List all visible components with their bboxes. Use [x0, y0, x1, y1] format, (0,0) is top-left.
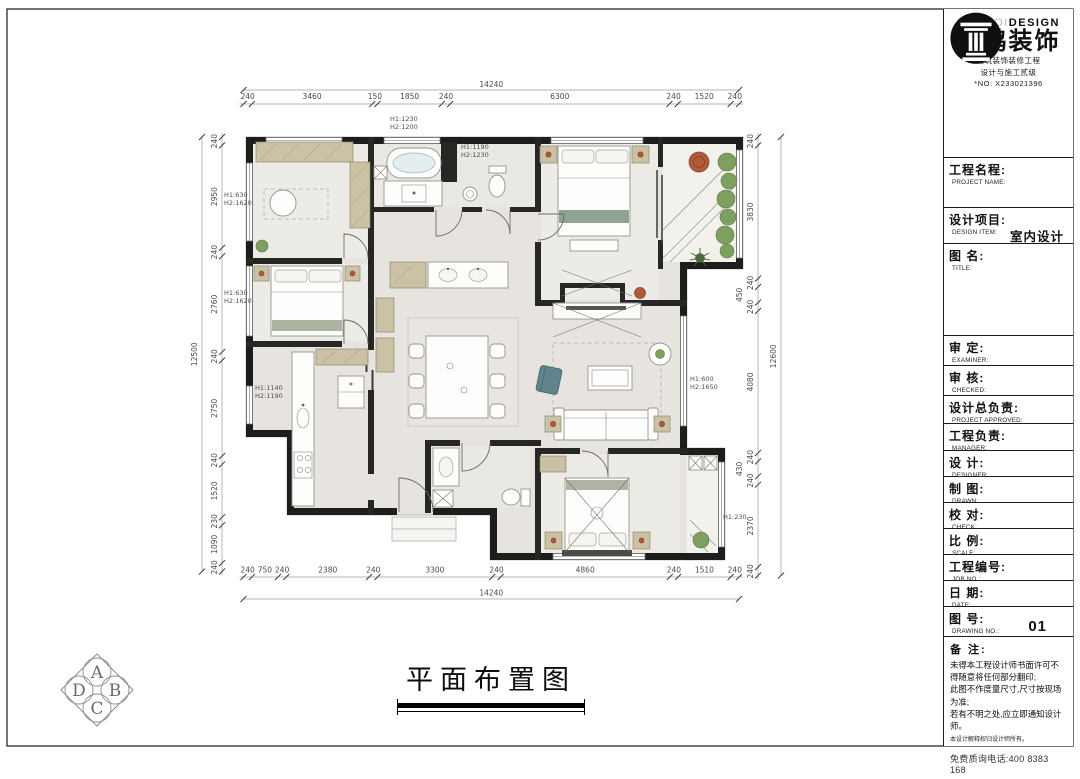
compass-letter-a: A [90, 663, 104, 683]
dim-label: 240 [241, 92, 256, 101]
sofa [554, 408, 658, 440]
svg-text:H1:230: H1:230 [723, 513, 747, 521]
compass-rose: A B C D [61, 654, 133, 726]
drawing-title-text: 平面布置图 [393, 658, 589, 697]
pillow [309, 270, 341, 282]
plant [693, 532, 709, 548]
note-line: 此图不作度量尺寸,尺寸按现场为准; [950, 683, 1067, 707]
row-label-cn: 审 核: [949, 371, 984, 385]
dim-total: 14240 [479, 589, 503, 598]
row-label-cn: 校 对: [949, 508, 984, 522]
dim-label: 240 [746, 134, 755, 149]
drawing-sheet: H1:1230 H2:1200 H1:1190 H2:1230 H1:630 H… [0, 0, 1080, 756]
titleblock-row-11: 工程编号:JOB NO.: [944, 555, 1073, 581]
dim-label: 4080 [746, 372, 755, 391]
dim-label: 240 [746, 275, 755, 290]
dim-label: 240 [728, 92, 743, 101]
row-label-cn: 设 计: [949, 456, 984, 470]
tv-cabinet [553, 303, 641, 319]
planter-pot-icon [689, 152, 709, 172]
row-value: 室内设计 [1010, 226, 1064, 245]
dim-label: 240 [666, 92, 681, 101]
dim-label: 3300 [425, 566, 444, 575]
bed-runner [272, 320, 342, 331]
column-logo-icon [944, 9, 1008, 71]
dim-label: 240 [746, 564, 755, 579]
svg-text:H1:1190: H1:1190 [461, 143, 489, 151]
row-label-cn: 图 名: [949, 249, 984, 263]
row-label-en: DRAWING NO.: [952, 628, 1068, 635]
washer-icon [433, 490, 453, 507]
titleblock-row-7: 设 计:DESIGNER: [944, 451, 1073, 477]
row-label-en: TITLE: [952, 265, 1068, 272]
pillow [596, 150, 628, 163]
svg-text:H1:600: H1:600 [690, 375, 714, 383]
pillow [569, 533, 596, 546]
compass-letter-d: D [72, 681, 86, 701]
window [681, 316, 687, 426]
dim-label: 240 [439, 92, 454, 101]
dim-label: 1850 [400, 92, 419, 101]
dim-label: 2370 [746, 516, 755, 535]
floor-plan: H1:1230 H2:1200 H1:1190 H2:1230 H1:630 H… [224, 115, 747, 560]
svg-text:H2:1230: H2:1230 [461, 151, 489, 159]
note-line: 未得本工程设计师书面许可不得随意将任何部分翻印; [950, 659, 1067, 683]
row-value: 01 [1028, 618, 1047, 635]
wardrobe [256, 142, 353, 162]
row-label-cn: 日 期: [949, 586, 984, 600]
dim-label: 240 [728, 566, 743, 575]
titleblock-row-2: 图 名:TITLE: [944, 244, 1073, 336]
chair [490, 374, 505, 388]
window [384, 138, 440, 144]
titleblock-row-8: 制 图:DRAWN: [944, 477, 1073, 503]
notes-title: 备 注: [950, 641, 1067, 657]
row-label-cn: 制 图: [949, 482, 984, 496]
titleblock-row-9: 校 对:CHECK: [944, 503, 1073, 529]
bed-runner [559, 210, 629, 223]
row-label-cn: 设计总负责: [949, 401, 1019, 415]
dim-label: 150 [368, 92, 383, 101]
sideboard [376, 298, 394, 332]
fridge-icon [338, 376, 364, 408]
chair [409, 374, 424, 388]
row-label-en: EXAMINER: [952, 357, 1068, 364]
row-label-cn: 设计项目: [949, 213, 1006, 227]
row-label-cn: 图 号: [949, 612, 984, 626]
notes-small: 本设计解释权归设计师所有。 [950, 734, 1067, 743]
row-label-cn: 比 例: [949, 534, 984, 548]
dim-label: 230 [210, 514, 219, 529]
entry-step [392, 517, 456, 541]
washer-icon [374, 166, 387, 179]
svg-text:H1:1230: H1:1230 [390, 115, 418, 123]
headboard [562, 550, 632, 556]
chair [409, 404, 424, 418]
titleblock-row-12: 日 期:DATE: [944, 581, 1073, 607]
dim-label: 1520 [695, 92, 714, 101]
titleblock-notes: 备 注: 未得本工程设计师书面许可不得随意将任何部分翻印;此图不作度量尺寸,尺寸… [944, 637, 1073, 779]
row-label-en: CHECKED: [952, 387, 1068, 394]
row-label-cn: 工程编号: [949, 560, 1006, 574]
sink-icon [469, 269, 487, 282]
sink-icon [463, 187, 477, 201]
dim-label: 2950 [210, 187, 219, 206]
dim-label: 2760 [210, 294, 219, 313]
chair [409, 344, 424, 358]
svg-text:H1:630: H1:630 [224, 191, 248, 199]
cabinet [540, 456, 566, 472]
dim-label: 1520 [210, 481, 219, 500]
svg-text:H2:1620: H2:1620 [224, 199, 252, 207]
window [551, 138, 643, 144]
dim-label: 1510 [695, 566, 714, 575]
dim-label: 3830 [746, 202, 755, 221]
dim-label: 240 [275, 566, 290, 575]
titleblock-row-10: 比 例:SCALE: [944, 529, 1073, 555]
titleblock-row-4: 审 核:CHECKED: [944, 366, 1073, 396]
dim-label: 240 [667, 566, 682, 575]
row-label-en: PROJECT NAME: [952, 179, 1068, 186]
dim-label: 4860 [576, 566, 595, 575]
planter-pot-icon [635, 288, 646, 299]
toilet-icon [489, 166, 506, 197]
brand-reg-no: *NO: X233021396 [944, 78, 1073, 89]
svg-text:H2:1190: H2:1190 [255, 392, 283, 400]
bench [570, 240, 618, 251]
titleblock-row-5: 设计总负责:PROJECT APPROVED: [944, 396, 1073, 424]
cabinet [316, 349, 368, 365]
company-logo: NANHOIDESIGN 南鸿装饰 建筑装饰装修工程 设计与施工贰级 *NO: … [944, 9, 1073, 157]
dim-label: 6300 [550, 92, 569, 101]
dim-label: 240 [366, 566, 381, 575]
sink-icon [439, 269, 457, 282]
svg-text:H2:1200: H2:1200 [390, 123, 418, 131]
counter [292, 352, 314, 506]
notes-lines: 未得本工程设计师书面许可不得随意将任何部分翻印;此图不作度量尺寸,尺寸按现场为准… [950, 659, 1067, 732]
pillow [562, 150, 594, 163]
drawing-title-underline [393, 702, 589, 715]
dim-total: 12600 [769, 344, 778, 368]
dim-label: 240 [746, 299, 755, 314]
titleblock-rows: 工程名程:PROJECT NAME:设计项目:DESIGN ITEM:室内设计图… [944, 157, 1073, 637]
plant [256, 240, 268, 252]
dim-total: 14240 [479, 80, 503, 89]
dim-label: 2380 [318, 566, 337, 575]
round-table [270, 190, 296, 216]
window [247, 386, 253, 424]
dim-label: 240 [210, 453, 219, 468]
row-label-cn: 工程名程: [949, 163, 1006, 177]
titleblock-row-6: 工程负责:MANAGER: [944, 424, 1073, 451]
dim-label: 240 [210, 245, 219, 260]
dim-label: 750 [258, 566, 273, 575]
titleblock-row-0: 工程名程:PROJECT NAME: [944, 158, 1073, 208]
dim-label: 3460 [303, 92, 322, 101]
dim-label: 240 [210, 349, 219, 364]
dryer-icon [704, 456, 717, 470]
dim-label: 240 [746, 473, 755, 488]
washer-icon [689, 456, 702, 470]
dining-table [426, 336, 488, 418]
drawing-title: 平面布置图 [393, 658, 589, 715]
row-label-en: PROJECT APPROVED: [952, 417, 1068, 424]
row-label-cn: 工程负责: [949, 429, 1006, 443]
chair [490, 404, 505, 418]
compass-letter-c: C [90, 699, 103, 719]
floor-plan-canvas: H1:1230 H2:1200 H1:1190 H2:1230 H1:630 H… [0, 0, 1080, 756]
titleblock-row-13: 图 号:DRAWING NO.:01 [944, 607, 1073, 637]
dim-label: 450 [735, 287, 744, 302]
dim-label: 1090 [210, 534, 219, 553]
dim-label: 240 [210, 560, 219, 575]
row-label-cn: 审 定: [949, 341, 984, 355]
chair [490, 344, 505, 358]
titleblock-row-3: 审 定:EXAMINER: [944, 336, 1073, 366]
sink-icon [439, 457, 453, 477]
dim-label: 2750 [210, 399, 219, 418]
pillow [275, 270, 307, 282]
dim-label: 430 [735, 461, 744, 476]
window [737, 150, 743, 258]
window [719, 462, 725, 547]
dim-label: 240 [210, 134, 219, 149]
dim-label: 240 [746, 450, 755, 465]
svg-text:H2:1650: H2:1650 [690, 383, 718, 391]
dim-total: 12500 [190, 342, 199, 366]
svg-text:H1:1140: H1:1140 [255, 384, 283, 392]
titleblock-row-1: 设计项目:DESIGN ITEM:室内设计 [944, 208, 1073, 244]
compass-letter-b: B [109, 681, 122, 701]
toilet-icon [502, 489, 530, 506]
dim-label: 240 [489, 566, 504, 575]
corridor-vanity [390, 262, 508, 288]
dim-label: 240 [241, 566, 256, 575]
svg-text:H2:1620: H2:1620 [224, 297, 252, 305]
bed-runner [566, 480, 628, 490]
tv-icon [566, 306, 626, 310]
svg-text:H1:630: H1:630 [224, 289, 248, 297]
note-line: 若有不明之处,应立即通知设计师。 [950, 708, 1067, 732]
sideboard [376, 338, 394, 372]
coffee-table [588, 366, 632, 390]
title-block: NANHOIDESIGN 南鸿装饰 建筑装饰装修工程 设计与施工贰级 *NO: … [943, 9, 1073, 746]
